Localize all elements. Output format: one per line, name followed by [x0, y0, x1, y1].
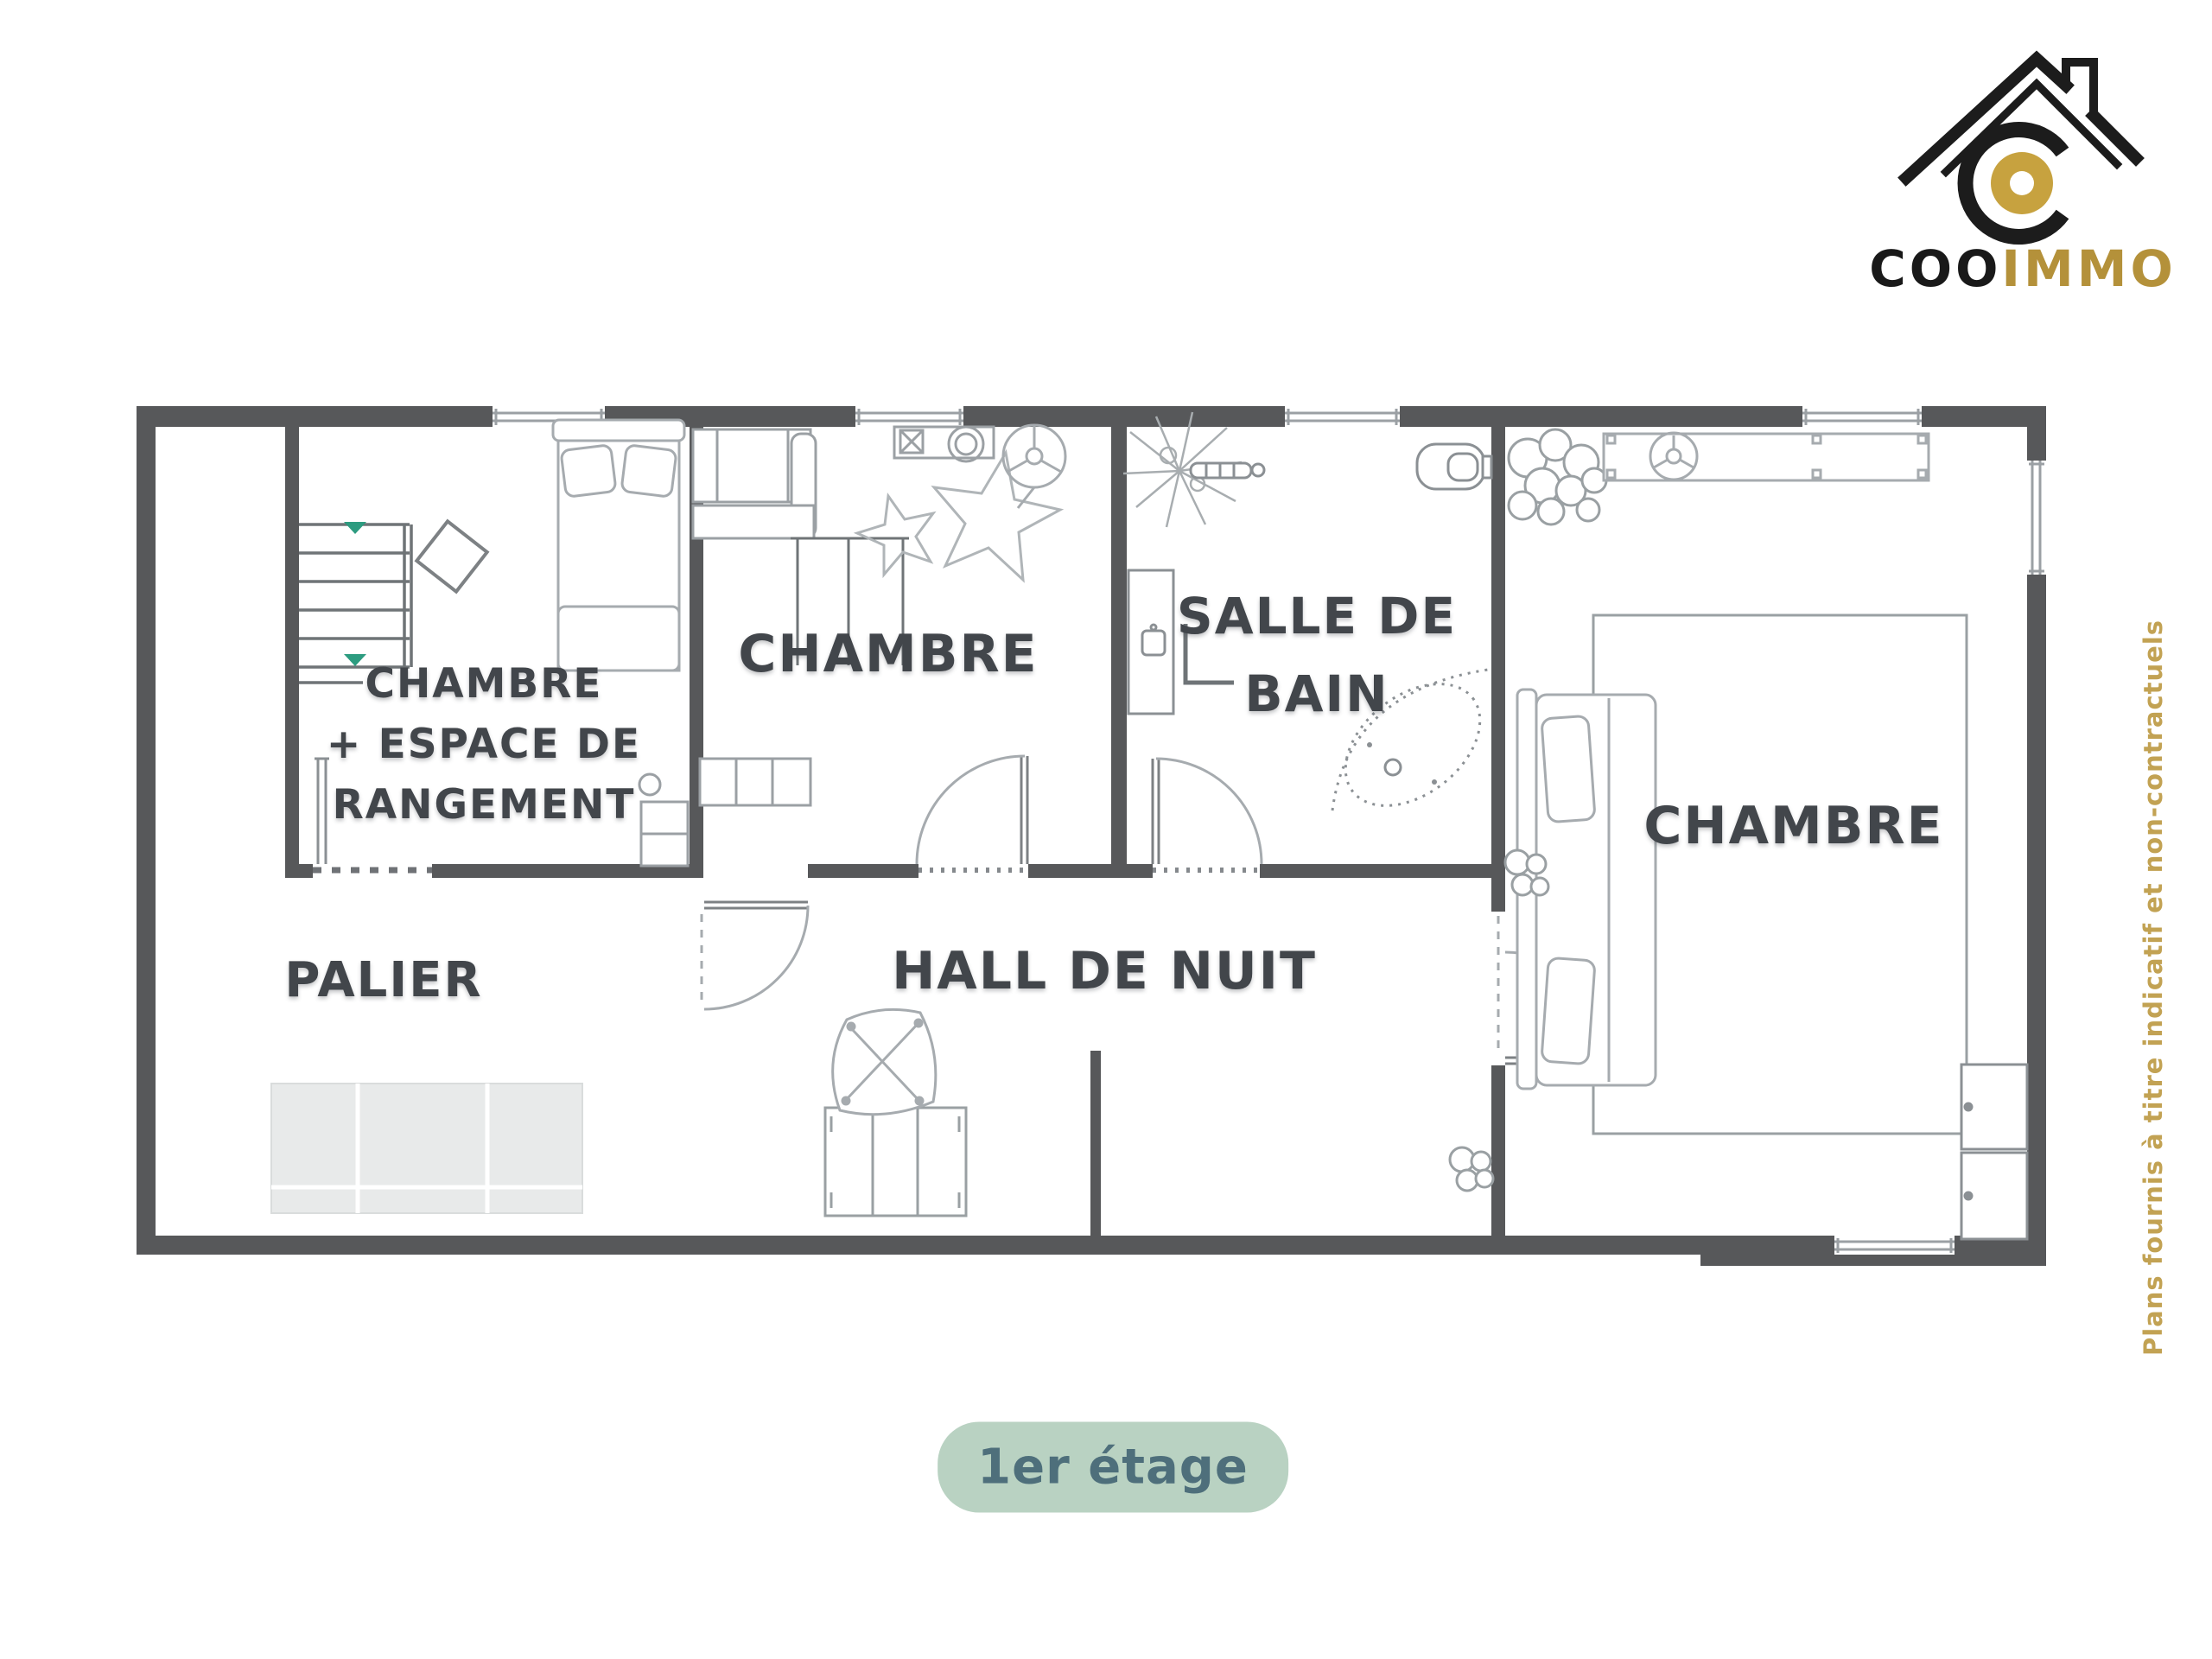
room-label-night-hall: HALL DE NUIT — [892, 932, 1317, 1010]
house-logo-icon — [1906, 59, 2136, 237]
cabinets — [1961, 1065, 2027, 1239]
room-label-bathroom: SALLE DE BAIN — [1177, 577, 1457, 733]
window-icon — [1285, 409, 1400, 425]
door-bedroom-center — [917, 756, 1027, 864]
star-decor — [857, 453, 1060, 580]
small-cabinet — [639, 774, 688, 866]
plant-icon — [1450, 1147, 1493, 1191]
closet — [693, 429, 816, 538]
decor-rotated-square — [416, 521, 486, 591]
window-icon — [2029, 461, 2044, 575]
brand-coo: COO — [1869, 239, 2001, 298]
window-icon — [1802, 409, 1922, 425]
disclaimer-note: Plans fournis à titre indicatif et non-c… — [2139, 620, 2168, 1356]
floor-badge: 1er étage — [938, 1422, 1288, 1513]
x-decor — [833, 1009, 936, 1114]
window-icon — [1834, 1238, 1955, 1253]
room-label-landing: PALIER — [284, 944, 482, 1017]
window-icon — [855, 409, 963, 425]
brand-wordmark: COOIMMO — [1869, 239, 2177, 298]
wall-shelf — [1604, 434, 1929, 480]
plant-icon — [1509, 429, 1606, 524]
vanity — [1128, 570, 1173, 714]
toilet-icon — [1417, 444, 1491, 489]
room-label-bedroom-center: CHAMBRE — [738, 615, 1038, 693]
towel-radiator — [1191, 463, 1264, 478]
room-label-bedroom-right: CHAMBRE — [1643, 787, 1943, 865]
chest-box — [825, 1108, 966, 1216]
dresser — [700, 759, 810, 805]
door-bathroom — [1153, 759, 1262, 864]
brand-immo: IMMO — [2001, 239, 2176, 298]
bed — [553, 420, 684, 671]
desk — [894, 427, 994, 461]
stair-direction-arrows — [344, 522, 366, 666]
room-label-storage-bedroom: CHAMBRE + ESPACE DE RANGEMENT — [327, 654, 641, 836]
palier-rug — [271, 1084, 582, 1213]
door-palier-hall — [702, 902, 808, 1009]
